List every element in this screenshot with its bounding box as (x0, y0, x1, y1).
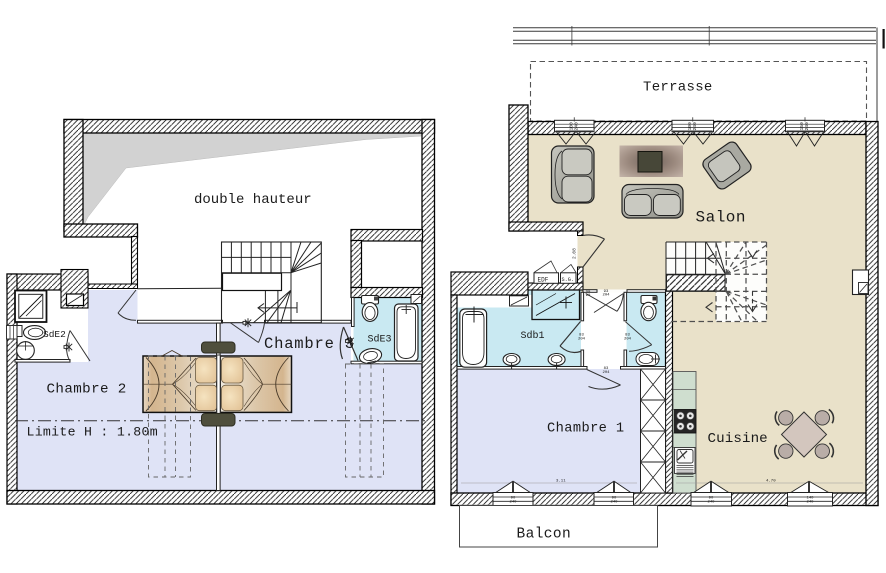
svg-text:Chambre 3: Chambre 3 (264, 335, 355, 353)
svg-text:Salon: Salon (696, 209, 747, 227)
svg-text:double hauteur: double hauteur (194, 192, 312, 208)
svg-text:240: 240 (574, 122, 580, 131)
svg-text:Chambre 1: Chambre 1 (547, 422, 625, 437)
svg-text:90: 90 (586, 294, 591, 298)
svg-text:Balcon: Balcon (517, 527, 572, 543)
svg-text:Sdb1: Sdb1 (521, 330, 545, 342)
svg-text:204: 204 (578, 337, 586, 341)
svg-text:240: 240 (707, 501, 715, 505)
svg-text:4.70: 4.70 (766, 480, 776, 484)
svg-text:SdE3: SdE3 (368, 334, 392, 346)
svg-text:204: 204 (602, 294, 610, 298)
svg-text:Limite H : 1.80m: Limite H : 1.80m (27, 425, 158, 440)
svg-text:3.11: 3.11 (556, 480, 566, 484)
svg-text:240: 240 (804, 122, 810, 131)
svg-text:EDF: EDF (538, 277, 549, 284)
svg-text:240: 240 (509, 501, 517, 505)
svg-text:240: 240 (692, 122, 698, 131)
svg-text:Terrasse: Terrasse (643, 80, 713, 96)
svg-text:240: 240 (610, 501, 618, 505)
svg-text:204: 204 (624, 337, 632, 341)
svg-text:SdE2: SdE2 (43, 329, 66, 340)
svg-text:Cuisine: Cuisine (708, 431, 768, 447)
svg-text:2.08: 2.08 (572, 248, 578, 259)
svg-text:Chambre 2: Chambre 2 (47, 382, 127, 398)
svg-text:204: 204 (602, 371, 610, 375)
svg-text:240: 240 (806, 501, 814, 505)
svg-text:S.G.: S.G. (562, 277, 574, 283)
